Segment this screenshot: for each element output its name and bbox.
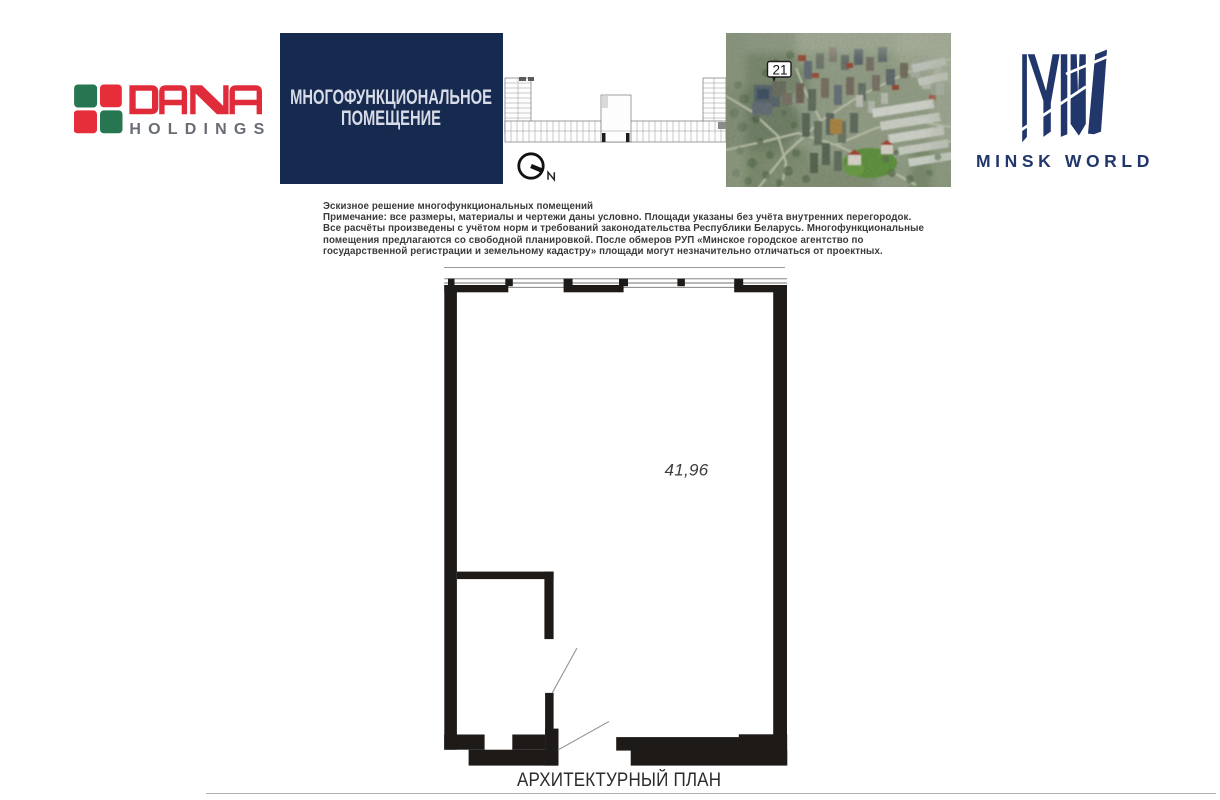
svg-text:41,96: 41,96 (665, 461, 709, 480)
